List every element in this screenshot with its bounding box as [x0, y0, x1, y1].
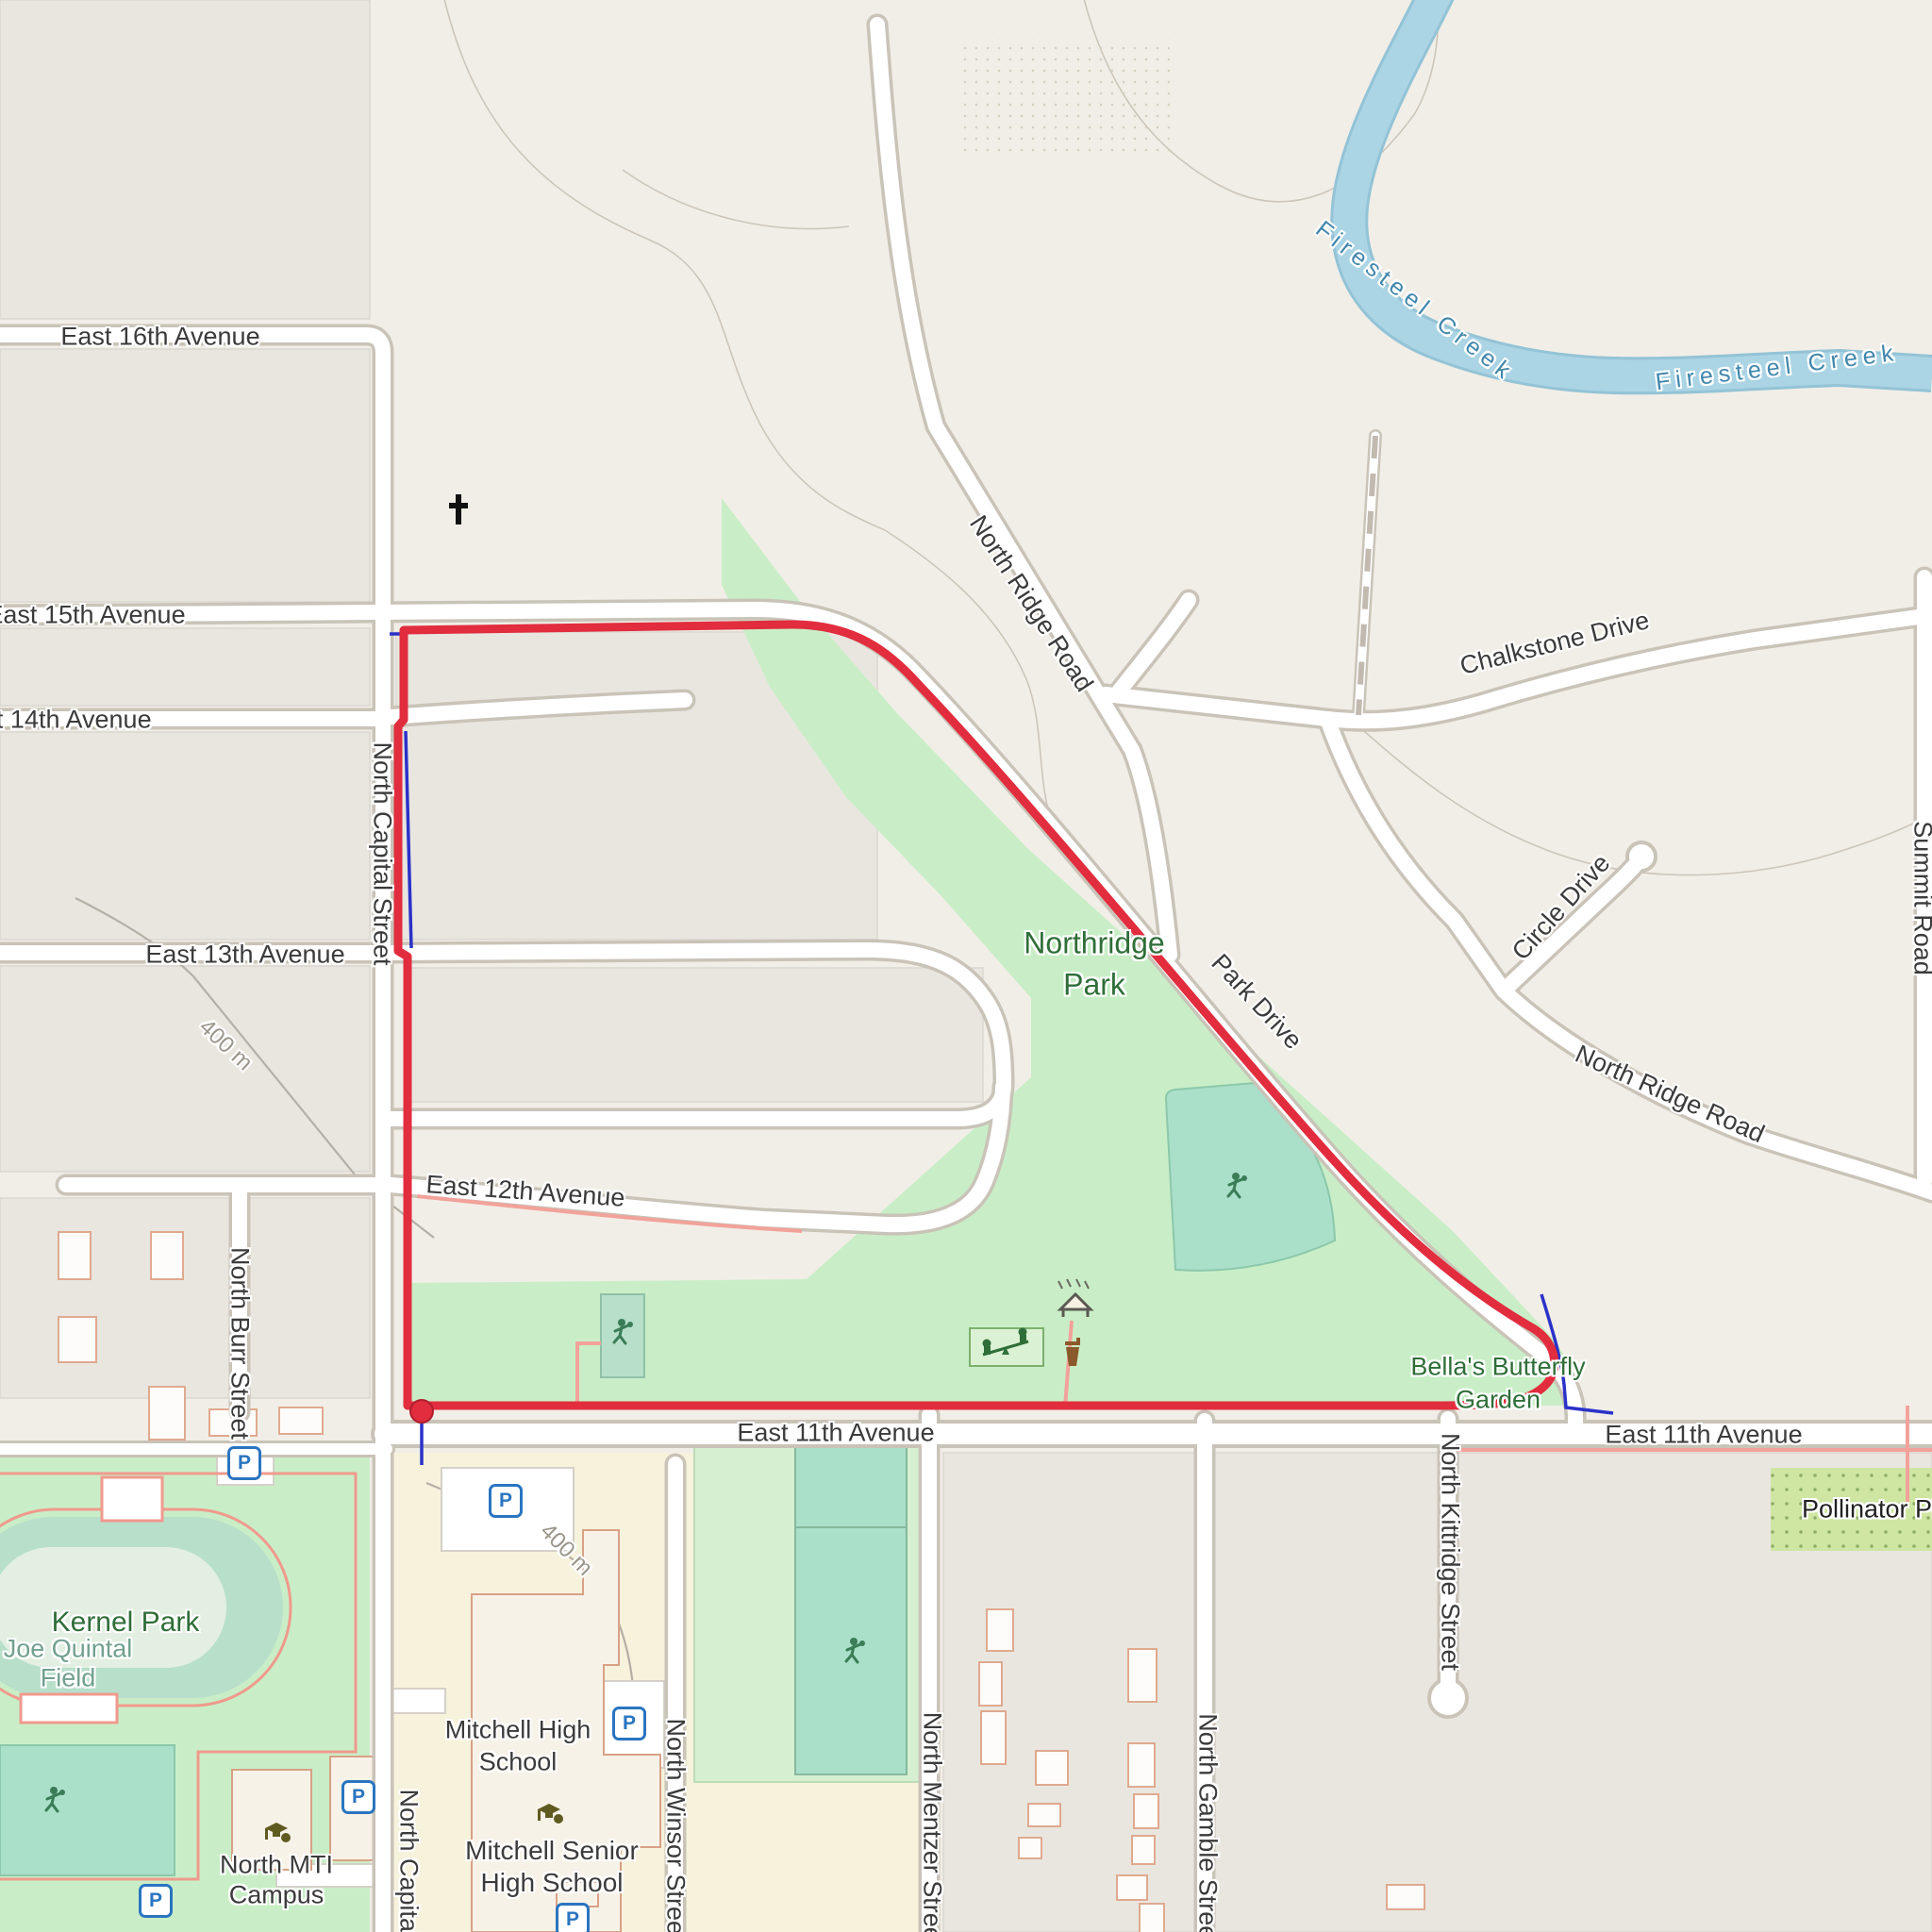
- basketball-court: [601, 1294, 644, 1377]
- route-start-end-marker[interactable]: [410, 1400, 433, 1423]
- parking-icon-school-north: P: [489, 1484, 523, 1518]
- parking-icon-mti: P: [341, 1780, 375, 1814]
- parking-icon-kernel: P: [227, 1446, 261, 1480]
- scrub-area: [962, 38, 1170, 160]
- court-sw: [0, 1745, 175, 1875]
- map-tiles: [0, 0, 1932, 1932]
- football-field-inner: [795, 1444, 907, 1774]
- parking-icon-southwest: P: [139, 1884, 173, 1918]
- parking-icon-school-east: P: [612, 1707, 646, 1740]
- map-canvas[interactable]: East 16th Avenue East 15th Avenue East 1…: [0, 0, 1932, 1932]
- parking-icon-school-south: P: [556, 1903, 590, 1932]
